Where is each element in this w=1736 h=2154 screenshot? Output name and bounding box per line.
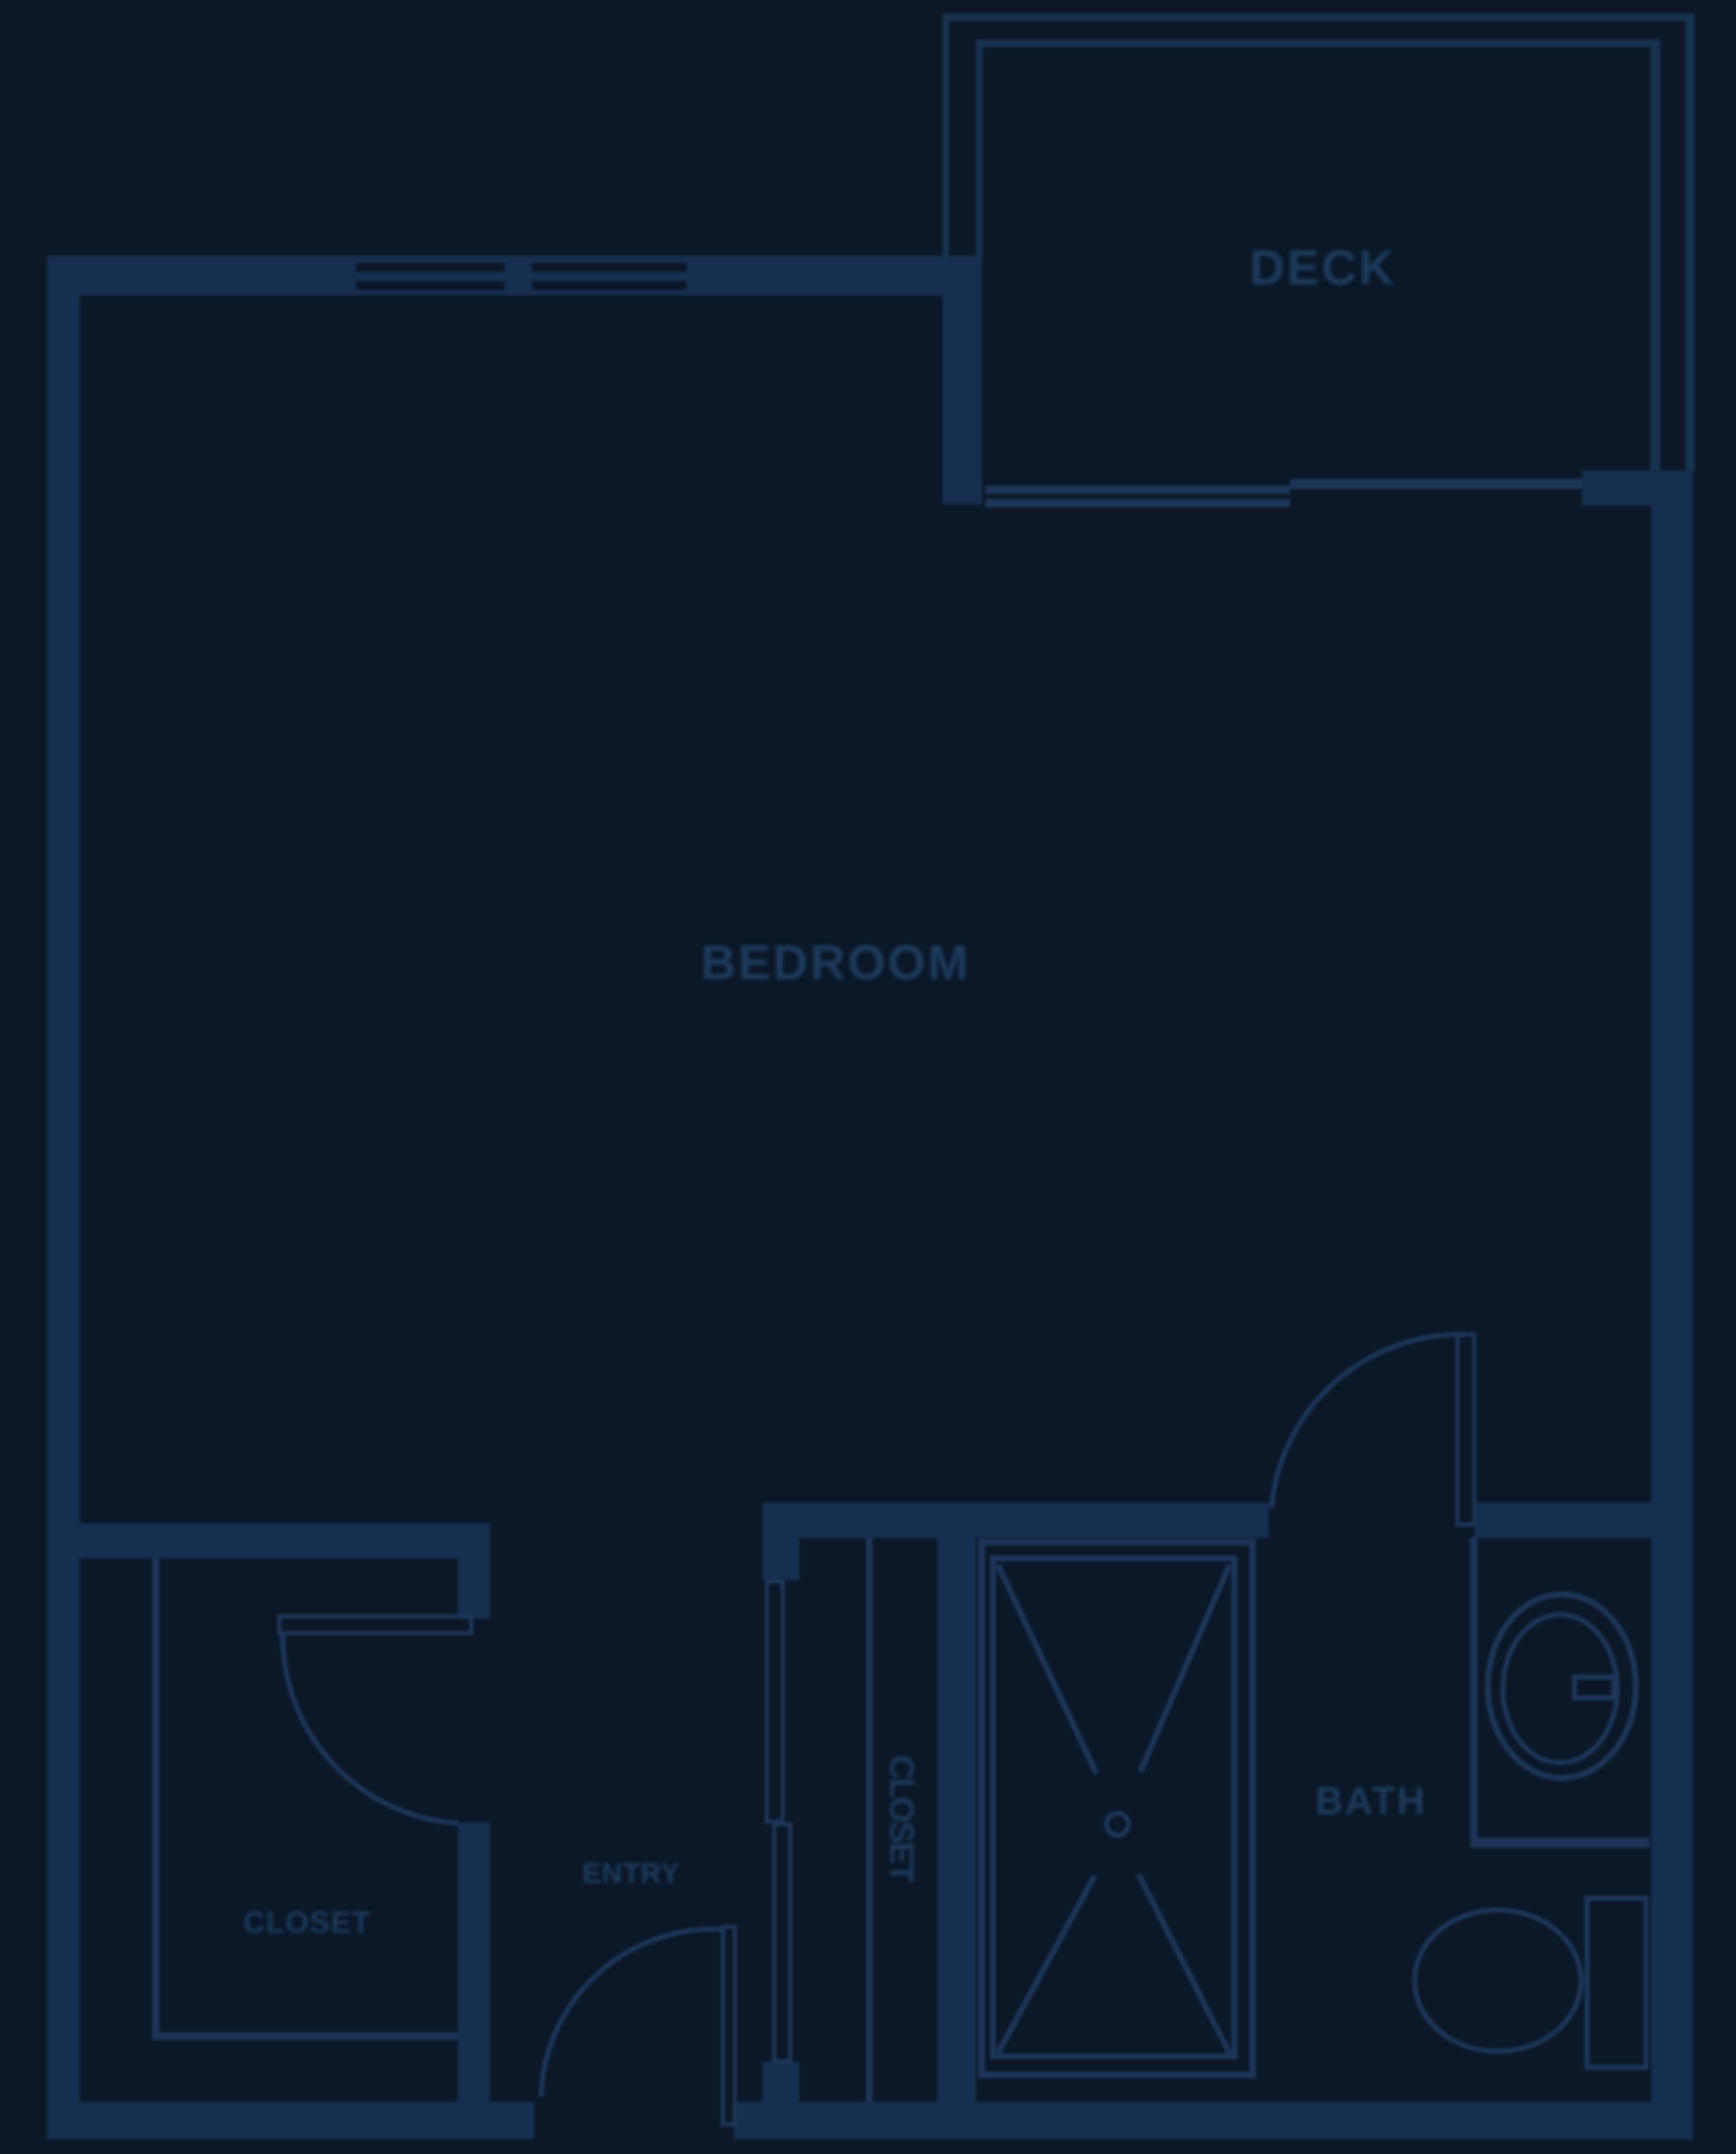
svg-text:CLOSET: CLOSET xyxy=(883,1755,920,1883)
svg-text:ENTRY: ENTRY xyxy=(582,1858,680,1890)
svg-text:DECK: DECK xyxy=(1250,241,1396,295)
svg-text:CLOSET: CLOSET xyxy=(243,1905,371,1939)
svg-text:BATH: BATH xyxy=(1315,1779,1426,1822)
svg-text:BEDROOM: BEDROOM xyxy=(701,936,970,990)
